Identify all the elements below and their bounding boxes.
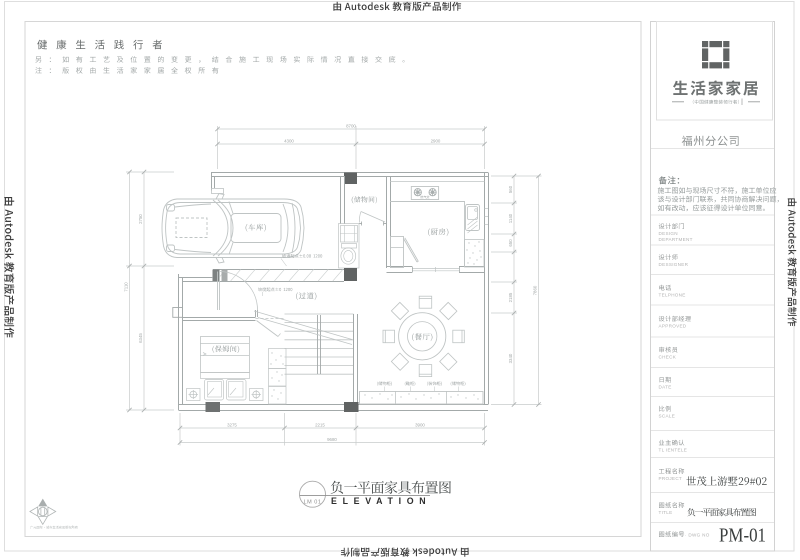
- svg-text:7110: 7110: [123, 282, 128, 292]
- svg-text:DESIGN: DESIGN: [659, 231, 678, 236]
- svg-text:2750: 2750: [138, 214, 143, 224]
- svg-text:TELPHONE: TELPHONE: [659, 293, 686, 298]
- svg-text:9680: 9680: [327, 437, 337, 442]
- svg-text:2185: 2185: [508, 292, 513, 302]
- svg-text:3900: 3900: [415, 422, 425, 427]
- svg-text:ELEVATION: ELEVATION: [331, 496, 431, 506]
- svg-text:PROJECT: PROJECT: [659, 476, 683, 481]
- svg-text:SCALE: SCALE: [659, 414, 676, 419]
- svg-text:DEPARTMENT: DEPARTMENT: [659, 237, 693, 242]
- svg-text:650: 650: [508, 239, 513, 247]
- svg-text:3340: 3340: [508, 353, 513, 363]
- svg-text:560: 560: [508, 185, 513, 193]
- svg-text:6345: 6345: [138, 333, 143, 343]
- svg-text:PM-01: PM-01: [719, 526, 766, 547]
- svg-text:3275: 3275: [227, 422, 237, 427]
- svg-text:TITLE: TITLE: [659, 510, 673, 515]
- svg-text:· DWG NO: · DWG NO: [685, 533, 710, 538]
- svg-text:1140: 1140: [508, 213, 513, 223]
- svg-text:APPROVED: APPROVED: [659, 324, 687, 329]
- svg-text:LM 01: LM 01: [304, 500, 322, 506]
- svg-text:8700: 8700: [346, 123, 356, 128]
- svg-text:DESSIGNER: DESSIGNER: [659, 262, 689, 267]
- svg-text:2215: 2215: [315, 422, 325, 427]
- svg-text:4300: 4300: [284, 138, 294, 143]
- svg-text:7860: 7860: [532, 285, 537, 295]
- svg-text:2900: 2900: [431, 138, 441, 143]
- svg-text:CHECK: CHECK: [659, 355, 677, 360]
- svg-text:DATE: DATE: [659, 385, 672, 390]
- svg-text:TL IENTELE: TL IENTELE: [659, 448, 688, 453]
